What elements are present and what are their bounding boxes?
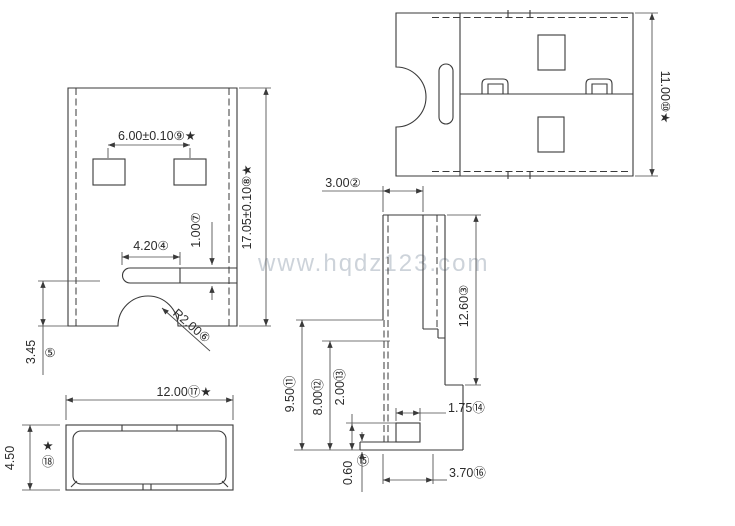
side-foot bbox=[396, 423, 420, 442]
latch-clip-left bbox=[482, 79, 508, 94]
dim-bottom-width: 12.00⑰★ bbox=[157, 385, 212, 399]
bottom-view-dimensions: 12.00⑰★ 4.50 ★ ⑱ bbox=[3, 385, 233, 490]
dim-bottom-height: 4.50 bbox=[3, 446, 17, 470]
pin-hole-left bbox=[93, 159, 125, 185]
side-view-dimensions: 3.00② 12.60③ 9.50⑪ 8.00⑫ 2.00⑬ 1.75⑭ bbox=[283, 176, 486, 492]
top-hole-upper bbox=[538, 35, 565, 70]
dim-side-inner-height: 8.00⑫ bbox=[311, 378, 325, 415]
dim-bottom-height-star: ★ bbox=[42, 439, 53, 453]
dim-front-height: 17.05±0.10⑧★ bbox=[240, 165, 254, 250]
drawing-canvas: www.hqdz123.com 6.00±0.10⑨★ 17.05±0.10⑧★… bbox=[0, 0, 735, 526]
side-view: 3.00② 12.60③ 9.50⑪ 8.00⑫ 2.00⑬ 1.75⑭ bbox=[283, 176, 486, 492]
dim-side-lip-badge: ⑮ bbox=[357, 454, 370, 468]
front-view-dimensions: 6.00±0.10⑨★ 17.05±0.10⑧★ 1.00⑦ 4.20④ R2.… bbox=[24, 88, 271, 375]
front-slot bbox=[123, 268, 180, 283]
dim-slot-width: 4.20④ bbox=[133, 239, 169, 253]
front-view: 6.00±0.10⑨★ 17.05±0.10⑧★ 1.00⑦ 4.20④ R2.… bbox=[24, 88, 271, 375]
shell-outline bbox=[66, 425, 233, 490]
pin-hole-right bbox=[174, 159, 206, 185]
dim-side-top-width: 3.00② bbox=[325, 176, 361, 190]
top-slot bbox=[439, 64, 453, 124]
watermark-text: www.hqdz123.com bbox=[257, 250, 489, 277]
top-view: 11.00⑩★ bbox=[396, 10, 672, 179]
shell-inner bbox=[73, 431, 226, 484]
dim-side-body-height: 12.60③ bbox=[457, 285, 471, 328]
dim-side-foot-height: 2.00⑬ bbox=[333, 368, 347, 405]
dim-side-lip-height: 0.60 bbox=[341, 461, 355, 485]
latch-clip-right bbox=[586, 79, 612, 94]
dim-bottom-height-badge: ⑱ bbox=[42, 455, 55, 469]
dim-pin-pitch: 6.00±0.10⑨★ bbox=[118, 129, 196, 143]
dim-slot-height: 1.00⑦ bbox=[189, 212, 203, 248]
technical-drawing-sheet: www.hqdz123.com 6.00±0.10⑨★ 17.05±0.10⑧★… bbox=[0, 0, 735, 526]
dim-left-height: 3.45 bbox=[24, 340, 38, 364]
bottom-view: 12.00⑰★ 4.50 ★ ⑱ bbox=[3, 385, 233, 490]
dim-side-overall-height: 9.50⑪ bbox=[283, 375, 297, 412]
dim-side-foot-width: 1.75⑭ bbox=[448, 401, 485, 415]
dim-top-width: 11.00⑩★ bbox=[658, 71, 672, 124]
dim-left-height-badge: ⑤ bbox=[44, 346, 55, 360]
top-view-geometry bbox=[396, 10, 633, 179]
bottom-view-geometry bbox=[66, 425, 233, 490]
dim-side-base-width: 3.70⑯ bbox=[449, 466, 486, 480]
top-view-dimensions: 11.00⑩★ bbox=[635, 13, 672, 176]
top-hole-lower bbox=[538, 117, 564, 152]
